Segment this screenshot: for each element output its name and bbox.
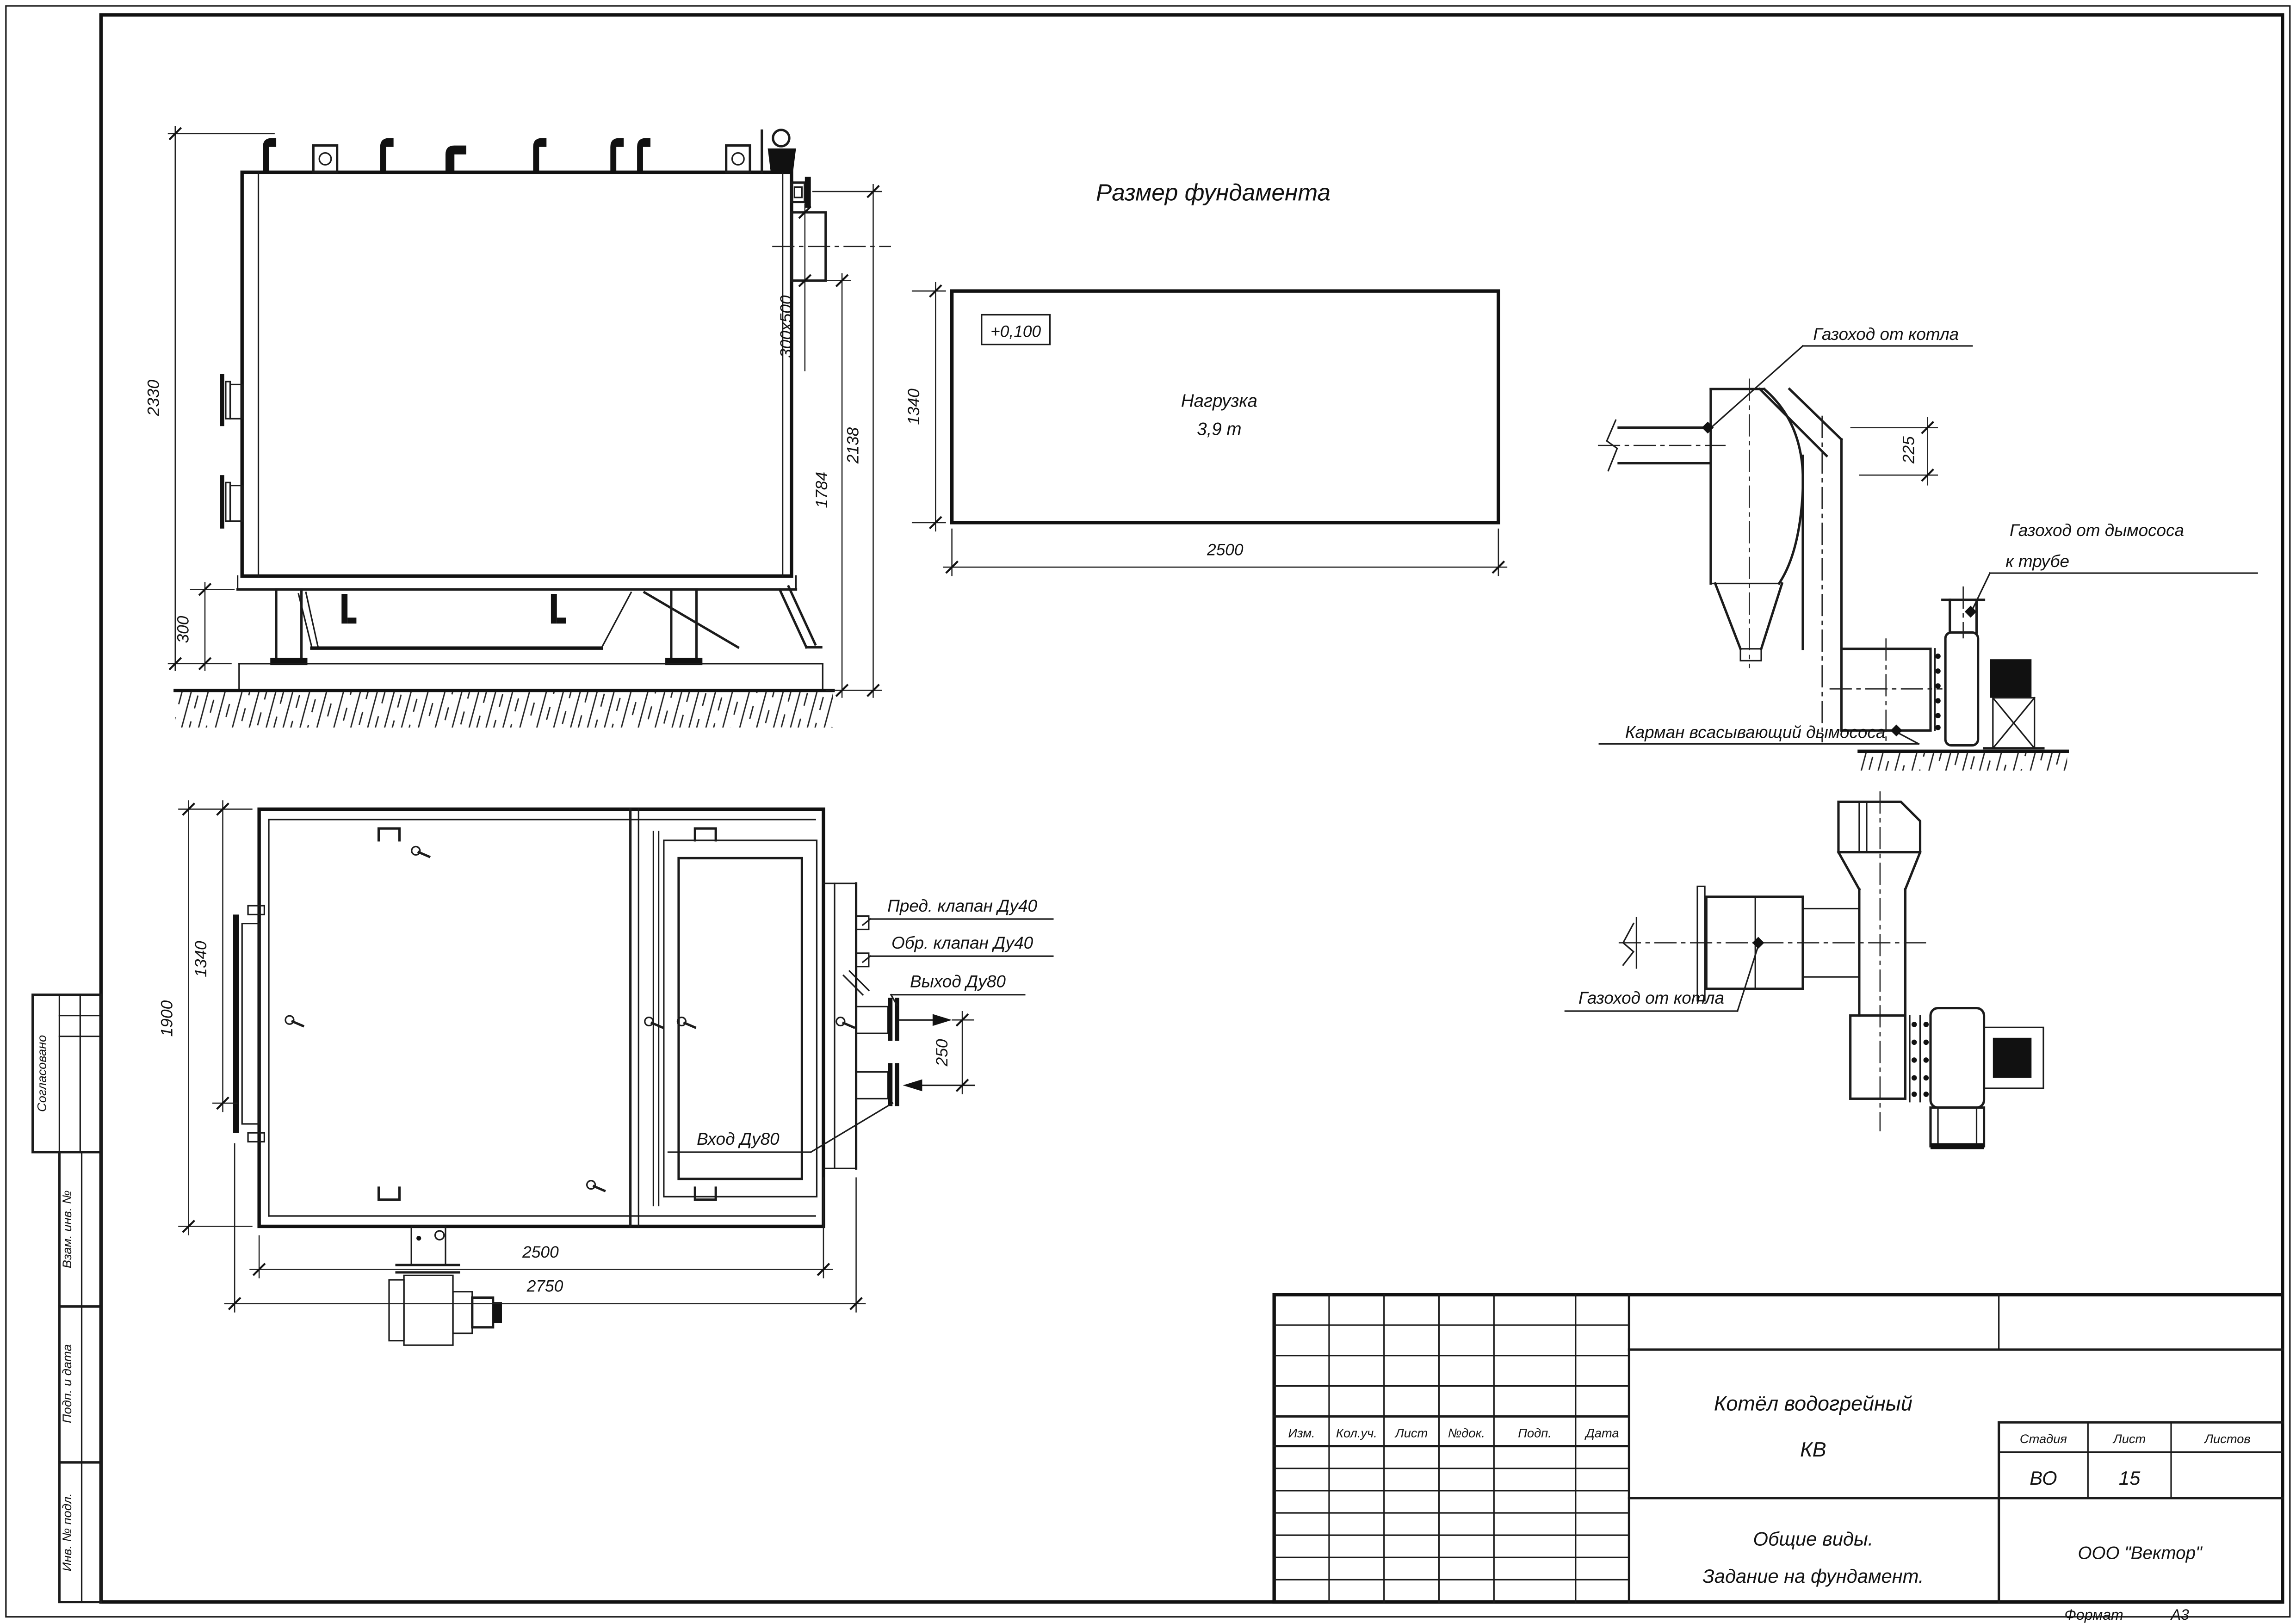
stage-value: ВО (2030, 1467, 2057, 1489)
dim-1340-foundation: 1340 (905, 389, 923, 425)
rev-header-izm: Изм. (1288, 1426, 1315, 1440)
doc-title-line1: Котёл водогрейный (1714, 1392, 1912, 1415)
doc-subtitle-line2: Задание на фундамент. (1702, 1565, 1924, 1587)
dim-1784: 1784 (813, 472, 831, 508)
fan-flange-bolts (1935, 654, 1941, 730)
format-label: Формат (2064, 1606, 2123, 1623)
drawing-canvas: 2330 300 300x500 1784 2138 Размер фундам… (0, 0, 2296, 1623)
format-value: А3 (2170, 1606, 2189, 1623)
dim-300x500: 300x500 (777, 295, 795, 358)
lifting-hook-icon (380, 138, 394, 173)
sheet-frame (6, 6, 2290, 1617)
foundation-title: Размер фундамента (1096, 179, 1331, 205)
elevation-mark: +0,100 (990, 323, 1041, 341)
margin-inv-no: Инв. № подл. (60, 1493, 74, 1571)
doc-title-line2: КВ (1800, 1438, 1826, 1461)
dim-2500-foundation: 2500 (1207, 541, 1244, 559)
rev-header-podp: Подп. (1518, 1426, 1552, 1440)
dim-250: 250 (933, 1039, 951, 1067)
margin-replace-inv: Взам. инв. № (60, 1191, 74, 1269)
label-outlet: Выход Ду80 (910, 972, 1006, 991)
rev-header-data: Дата (1584, 1426, 1619, 1440)
doc-subtitle-line1: Общие виды. (1753, 1528, 1874, 1550)
label-duct-from-boiler: Газоход от котла (1813, 325, 1959, 344)
lifting-hook-icon (610, 138, 624, 173)
vent-pipe-icon (446, 146, 466, 173)
sheet-border (6, 6, 2290, 1617)
valve-icon (768, 148, 796, 172)
fan-motor (1993, 1038, 2031, 1078)
company-name: ООО "Вектор" (2078, 1543, 2203, 1563)
margin-column: Согласовано Взам. инв. № Подп. и дата Ин… (33, 995, 101, 1602)
drawing-sheet: 2330 300 300x500 1784 2138 Размер фундам… (0, 0, 2296, 1623)
sheets-header: Листов (2203, 1432, 2250, 1446)
stage-header: Стадия (2020, 1432, 2067, 1446)
dim-1340-plan: 1340 (192, 941, 210, 977)
label-safety-valve: Пред. клапан Ду40 (887, 896, 1037, 915)
label-duct-to-stack-2: к трубе (2005, 552, 2069, 571)
load-text: Нагрузка (1181, 391, 1257, 411)
dim-2138: 2138 (844, 427, 862, 464)
dim-1900: 1900 (158, 1000, 176, 1037)
dim-300: 300 (174, 616, 192, 643)
dim-2500-plan: 2500 (522, 1243, 559, 1261)
label-check-valve: Обр. клапан Ду40 (891, 933, 1034, 952)
label-duct-from-boiler-plan: Газоход от котла (1578, 988, 1724, 1007)
fan-motor (1990, 659, 2031, 697)
burner (389, 1226, 502, 1345)
sheet-value: 15 (2119, 1467, 2141, 1489)
lifting-hook-icon (263, 138, 276, 173)
sheet-header: Лист (2112, 1432, 2146, 1446)
load-value: 3,9 т (1197, 420, 1241, 439)
title-block: Изм. Кол.уч. Лист №док. Подп. Дата Котёл… (1274, 1295, 2283, 1623)
ground-hatch (1859, 753, 2067, 771)
rev-header-koluch: Кол.уч. (1336, 1426, 1377, 1440)
margin-sign-date: Подп. и дата (60, 1344, 74, 1423)
ground-hatch (175, 692, 833, 728)
dim-2750: 2750 (526, 1277, 563, 1296)
flue-side-view: 225 Газоход от котла Газоход от дымососа… (1598, 325, 2257, 771)
label-inlet: Вход Ду80 (697, 1129, 780, 1148)
boiler-side-view: 2330 300 300x500 1784 2138 (144, 126, 891, 728)
label-suction-pocket: Карман всасывающий дымососа (1625, 722, 1886, 741)
rev-header-ndok: №док. (1448, 1426, 1485, 1440)
boiler-plan-view: 250 Пред. клапан Ду40 Обр. клапан Ду40 В… (158, 800, 1053, 1345)
dim-2330: 2330 (144, 380, 162, 417)
dim-225: 225 (1900, 436, 1918, 464)
lifting-hook-icon (533, 138, 546, 173)
flue-plan-view: Газоход от котла (1565, 791, 2043, 1149)
foundation-plan: Размер фундамента +0,100 Нагрузка 3,9 т … (905, 179, 1507, 576)
margin-approved: Согласовано (35, 1035, 49, 1112)
lifting-hook-icon (637, 138, 650, 173)
rev-header-list: Лист (1394, 1426, 1428, 1440)
label-duct-to-stack-1: Газоход от дымососа (2010, 521, 2184, 540)
